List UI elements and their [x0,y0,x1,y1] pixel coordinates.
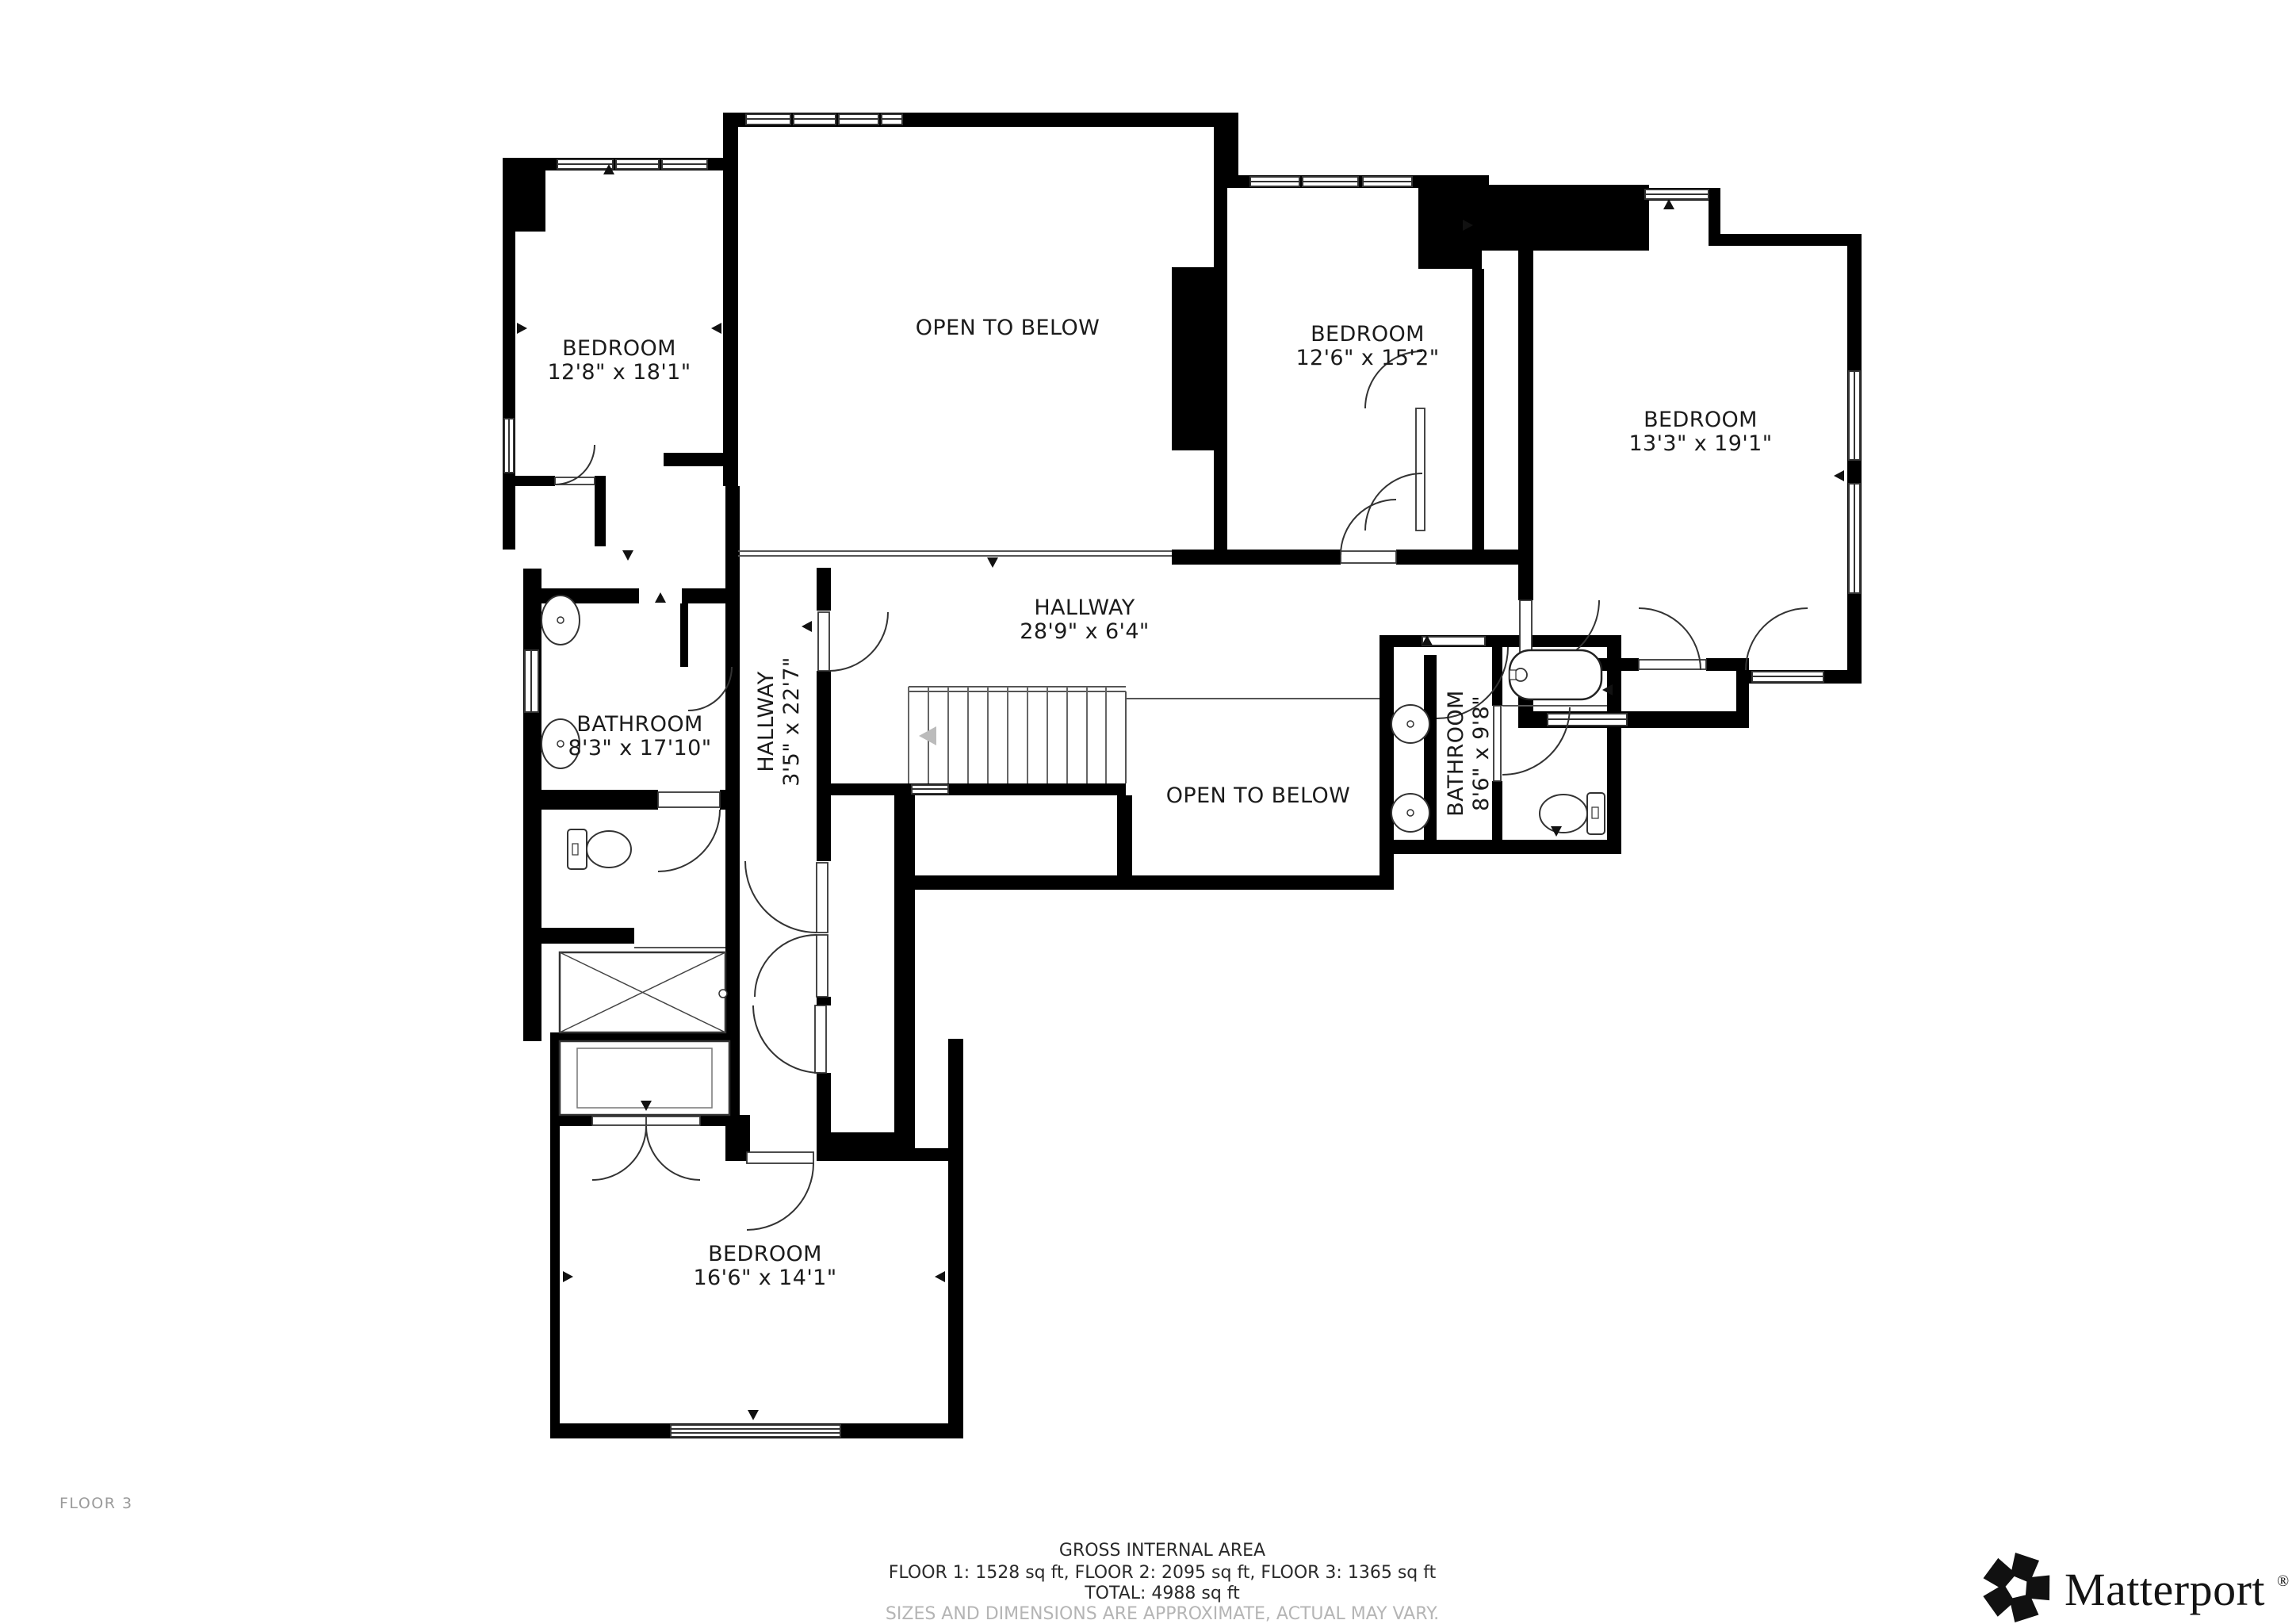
matterport-mark-icon [1978,1553,2057,1624]
matterport-wordmark: Matterport ® [2064,1564,2290,1615]
toilet-left [568,829,631,869]
room-label-bedroom-4: BEDROOM [708,1242,822,1266]
floor-plan-canvas: BEDROOM 12'8" x 18'1" OPEN TO BELOW BEDR… [0,0,2296,1624]
matterport-brand-name: Matterport [2064,1564,2265,1615]
bathtub [1510,650,1601,699]
toilet-button [572,844,578,855]
room-dims-hallway-main: 28'9" x 6'4" [1020,619,1150,644]
registered-trademark-icon: ® [2277,1572,2290,1590]
room-label-bedroom-2: BEDROOM [1311,322,1425,347]
room-dims-bathroom-right: 8'6" x 9'8" [1469,695,1494,811]
room-label-bedroom-1: BEDROOM [562,336,676,361]
room-dims-bedroom-1: 12'8" x 18'1" [547,360,691,385]
sink-drain [1407,810,1414,816]
bathtub-spout [1510,670,1516,680]
room-label-bedroom-3: BEDROOM [1644,408,1758,432]
room-label-bathroom-right: BATHROOM [1444,690,1468,816]
shower-head-icon [719,990,727,998]
walls [503,113,1862,1438]
toilet-bowl [1540,795,1587,833]
room-dims-bedroom-4: 16'6" x 14'1" [693,1266,836,1290]
footer-total-area: TOTAL: 4988 sq ft [1084,1584,1240,1603]
room-dims-bedroom-3: 13'3" x 19'1" [1628,431,1772,456]
footer-gross-internal-area: GROSS INTERNAL AREA [1059,1541,1265,1561]
bathroom-right-sinks [1391,705,1429,832]
footer-disclaimer: SIZES AND DIMENSIONS ARE APPROXIMATE, AC… [886,1604,1439,1624]
room-label-bathroom-left: BATHROOM [576,712,702,737]
footer-area-summary: GROSS INTERNAL AREA FLOOR 1: 1528 sq ft,… [886,1541,1439,1624]
stair-treads [909,687,1106,783]
matterport-logo: Matterport ® [1978,1553,2289,1624]
room-dims-hallway-vertical: 3'5" x 22'7" [779,657,804,787]
sink-drain [1407,721,1414,727]
room-label-open-to-below-lower: OPEN TO BELOW [1166,783,1351,808]
room-label-hallway-vertical: HALLWAY [754,671,779,772]
room-label-open-to-below-upper: OPEN TO BELOW [916,316,1100,340]
staircase [909,687,1106,783]
toilet-right [1540,793,1605,834]
toilet-button [1592,807,1598,818]
footer-floor-areas: FLOOR 1: 1528 sq ft, FLOOR 2: 2095 sq ft… [889,1563,1437,1583]
room-label-hallway-main: HALLWAY [1034,596,1135,620]
floor-label: FLOOR 3 [59,1495,133,1512]
shower-stall [560,952,727,1032]
room-dims-bathroom-left: 8'3" x 17'10" [568,736,711,760]
room-dims-bedroom-2: 12'6" x 15'2" [1295,346,1439,370]
floor-plan-page: BEDROOM 12'8" x 18'1" OPEN TO BELOW BEDR… [0,0,2296,1624]
sink-drain [557,741,564,747]
toilet-bowl [587,831,631,868]
sink-drain [557,617,564,623]
